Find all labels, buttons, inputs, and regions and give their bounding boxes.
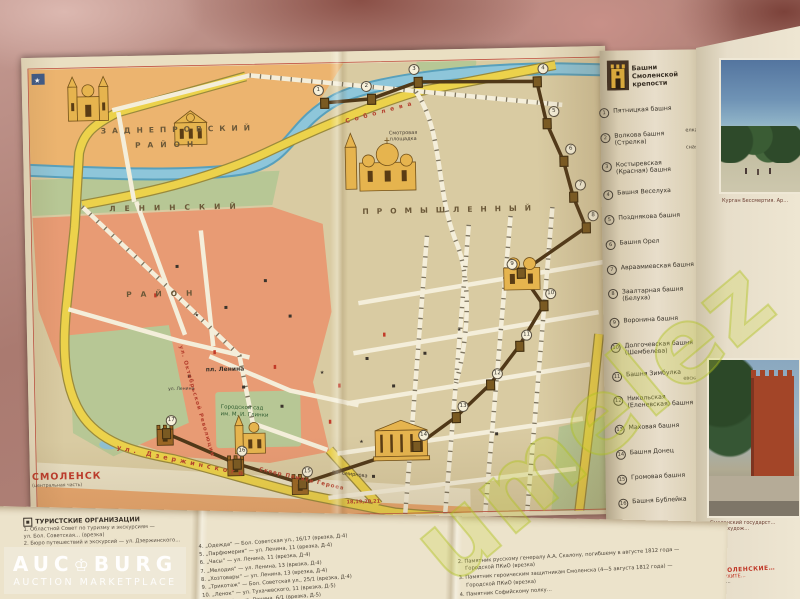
tower-name: Авраамиевская башня <box>621 260 694 271</box>
tower-name: Маховая башня <box>628 422 679 431</box>
tower-name: Никольская (Еленевская) башня <box>627 392 703 410</box>
legend-item: 5Позднякова башня <box>604 211 693 225</box>
tower-name: Башня Орел <box>619 237 659 246</box>
auction-watermark: AUC♔BURG AUCTION MARKETPLACE <box>4 547 186 594</box>
district-label-zadneprovsky-2: РАЙОН <box>135 139 200 149</box>
square-label-lenina: пл. Ленина <box>206 366 245 374</box>
svg-text:★: ★ <box>34 77 40 85</box>
svg-text:★: ★ <box>457 327 462 333</box>
brand-right: BURG <box>94 552 177 576</box>
legend-item: 3Костыревская (Красная) башня <box>602 158 692 176</box>
tourist-organizations-block: ТУРИСТСКИЕ ОРГАНИЗАЦИИ 1. Областной Сове… <box>23 514 212 548</box>
photo-mound-of-immortality <box>721 60 800 192</box>
legend-item: 16Башня Бублейка <box>618 495 707 509</box>
legend-fold: Башни Смоленской крепости 1Пятницкая баш… <box>600 49 706 542</box>
photo1-caption: Курган Бессмертия. Ар… <box>722 198 788 204</box>
viewpoint-label: Смотровая площадка <box>389 130 418 143</box>
tower-number-badge: 6 <box>605 240 615 250</box>
city-subtitle: (центральная часть) <box>32 483 82 489</box>
tower-name: Башня Донец <box>630 447 674 456</box>
wall-tower-marker <box>517 268 526 279</box>
wall-tower-marker <box>414 77 423 88</box>
tourist-organizations-lines: 1. Областной Совет по туризму и экскурси… <box>23 523 211 548</box>
shops-address-list: 4. „Одежда“ — Бол. Советская ул., 16/17 … <box>198 524 461 599</box>
tower-name: Башня Веселуха <box>617 187 671 197</box>
legend-item: 8Заалтарная башня (Белуха) <box>608 285 698 303</box>
auction-brand: AUC♔BURG <box>13 553 177 577</box>
photo-fortress-tower <box>709 360 799 516</box>
photo-tree <box>709 360 753 474</box>
svg-text:★: ★ <box>320 370 325 376</box>
legend-item: 1Пятницкая башня <box>599 104 688 118</box>
wall-tower-marker <box>452 412 461 423</box>
wall-tower-marker <box>515 341 524 352</box>
wall-tower-marker <box>162 428 171 439</box>
monuments-list: 2. Памятник русскому генералу А.А. Скало… <box>458 546 688 599</box>
wall-tower-marker <box>533 76 542 87</box>
svg-text:★: ★ <box>359 439 364 445</box>
street-label-lenina: ул. Ленина <box>168 387 194 393</box>
photo-trees <box>721 126 800 163</box>
tower-number-badge: 8 <box>608 289 618 299</box>
garden-label-line2: им. М. И. Глинки <box>220 411 268 419</box>
wall-tower-marker <box>539 300 548 311</box>
city-title: СМОЛЕНСК <box>32 471 102 483</box>
viewpoint-line2: площадка <box>390 136 417 143</box>
legend-item: 12Никольская (Еленевская) башня <box>613 392 703 410</box>
photo-people <box>745 168 747 174</box>
tower-number-badge: 7 <box>607 264 617 274</box>
tower-name: Пятницкая башня <box>613 105 672 115</box>
inset-numbers-label: 18,19,20,21 <box>346 499 380 506</box>
legend-header-line2: крепости <box>632 79 667 89</box>
wall-tower-marker <box>367 94 376 105</box>
tower-number-badge: 13 <box>614 425 624 435</box>
tower-name: Волкова башня (Стрелка) <box>614 129 690 147</box>
section-icon <box>23 518 32 527</box>
tower-name: Долгочевская башня (Шембелева) <box>624 339 700 357</box>
tower-number-badge: 2 <box>600 133 610 143</box>
tower-number-badge: 11 <box>612 371 622 381</box>
tower-name: Позднякова башня <box>618 212 680 222</box>
wall-tower-marker <box>412 441 421 452</box>
auction-subtitle: AUCTION MARKETPLACE <box>13 577 176 588</box>
brand-left: AUC <box>13 552 74 576</box>
photo-foreground <box>709 501 799 516</box>
district-label-leninsky-2: РАЙОН <box>126 288 201 299</box>
photo-brick-tower <box>751 376 794 480</box>
wall-tower-marker <box>559 156 568 167</box>
svg-text:★: ★ <box>195 312 200 318</box>
photo-wall <box>709 476 799 502</box>
map-sheet: ★★ ★★ ★ 1234567891011121314151617 ЗАДНЕП… <box>21 46 615 526</box>
tower-number-badge: 12 <box>613 396 623 406</box>
legend-item: 14Башня Донец <box>616 445 705 459</box>
tower-name: Заалтарная башня (Белуха) <box>622 285 698 303</box>
tower-number-badge: 10 <box>610 342 620 352</box>
tower-number-badge: 15 <box>617 474 627 484</box>
tower-name: Башня Бублейка <box>632 496 687 506</box>
tower-name: Костыревская (Красная) башня <box>616 158 692 176</box>
right-fold: Курган Бессмертия. Ар… Смоленский госуда… <box>696 18 800 599</box>
tower-number-badge: 4 <box>603 190 613 200</box>
wall-tower-marker <box>320 98 329 109</box>
legend-item: 13Маховая башня <box>614 421 703 435</box>
tower-number-badge: 9 <box>609 318 619 328</box>
legend-item: 2Волкова башня (Стрелка) <box>600 129 690 147</box>
legend-overflow-fragments: елка)сная)евская) <box>600 49 699 50</box>
tower-number-badge: 16 <box>618 499 628 509</box>
legend-item: 6Башня Орел <box>605 236 694 250</box>
legend-item: 9Воронина башня <box>609 314 698 328</box>
tower-number-badge: 14 <box>616 449 626 459</box>
tower-name: Громовая башня <box>631 471 685 481</box>
wall-tower-marker <box>486 379 495 390</box>
legend-item: 10Долгочевская башня (Шембелева) <box>610 339 700 357</box>
garden-label-glinka: Городской сад им. М. И. Глинки <box>220 404 290 420</box>
legend-header: Башни Смоленской крепости <box>631 61 699 88</box>
wall-tower-marker <box>543 118 552 129</box>
wall-tower-marker <box>569 192 578 203</box>
tower-number-badge: 3 <box>602 161 612 171</box>
fortress-tower-icon <box>607 60 629 90</box>
wall-tower-marker <box>582 222 591 233</box>
map-graphic: ★★ ★★ ★ <box>21 46 615 526</box>
legend-header-line1: Башни Смоленской <box>631 63 678 80</box>
photo-of-folded-smolensk-map: ★★ ★★ ★ 1234567891011121314151617 ЗАДНЕП… <box>0 0 800 599</box>
crown-icon: ♔ <box>74 556 94 576</box>
legend-item: 7Авраамиевская башня <box>607 260 696 274</box>
legend-tower-list: 1Пятницкая башня2Волкова башня (Стрелка)… <box>599 104 709 534</box>
legend-item: 4Башня Веселуха <box>603 186 692 200</box>
legend-item: 15Громовая башня <box>617 470 706 484</box>
tower-name: Воронина башня <box>623 315 678 325</box>
tower-number-badge: 1 <box>599 108 609 118</box>
tower-number-badge: 5 <box>604 215 614 225</box>
tower-name: Башня Зимбулка <box>626 368 681 378</box>
